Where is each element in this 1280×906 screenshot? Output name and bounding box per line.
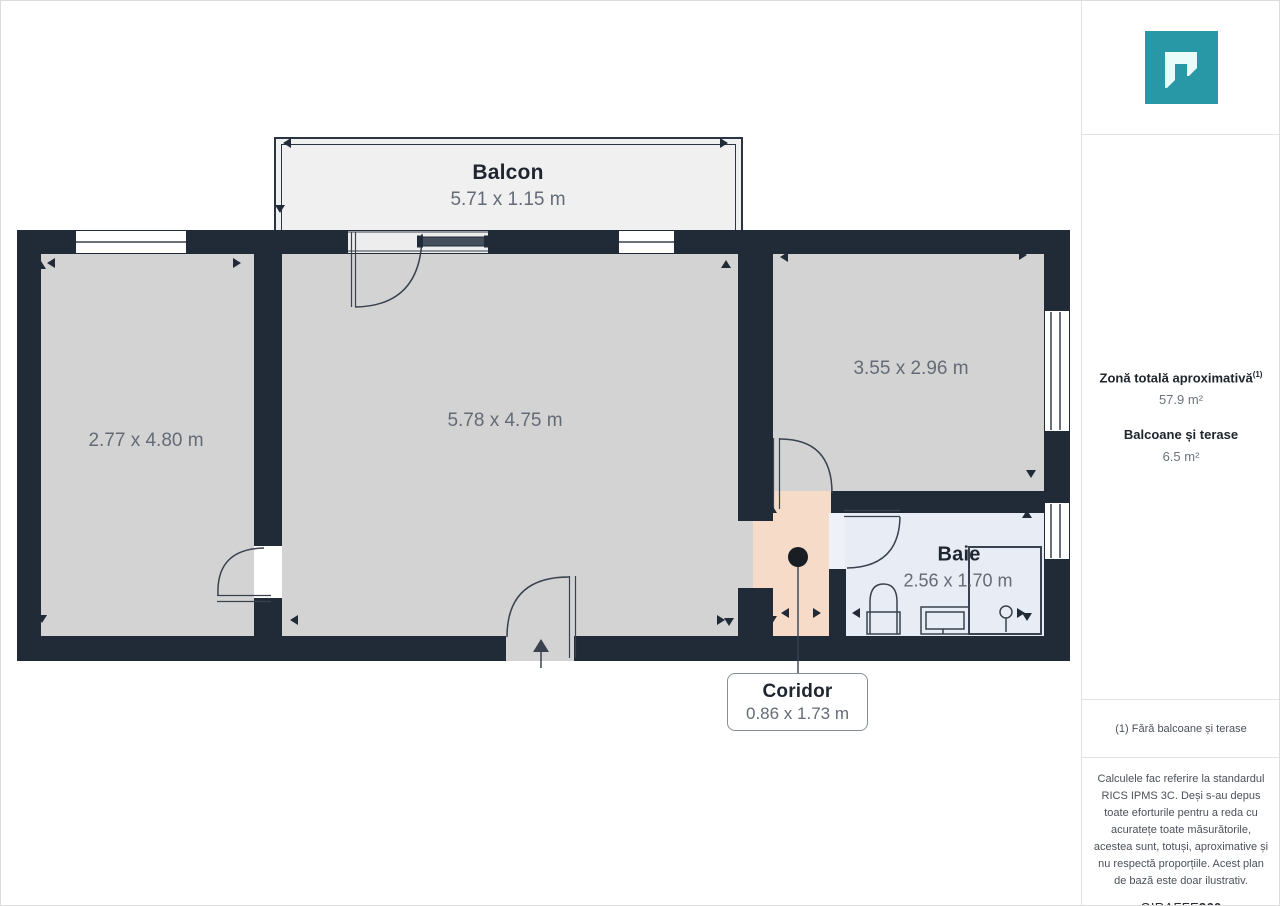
wall-right (1044, 230, 1070, 661)
total-area-footnote-ref: (1) (1253, 370, 1263, 379)
balcony-name-label: Balcon (472, 161, 543, 185)
floorplan-page: Balcon 5.71 x 1.15 m 2.77 x 4.80 m 5.78 … (0, 0, 1280, 906)
corridor-passage-floor2 (753, 521, 773, 588)
wall-interior-a2 (254, 598, 282, 636)
brand-wordmark: GIRAFFE360 (1093, 900, 1269, 906)
room-right-dims-label: 3.55 x 2.96 m (853, 358, 968, 380)
measure-arrow-icon (767, 500, 777, 513)
bathroom-name-label: Baie (937, 544, 980, 567)
bathroom-doorway-floor (829, 513, 845, 569)
wall-interior-b1 (738, 254, 773, 521)
giraffe360-logo-icon (1145, 31, 1218, 104)
room-main-floor (282, 254, 738, 636)
wall-bathroom-top (831, 491, 1044, 513)
measure-arrow-icon (1019, 250, 1032, 260)
balcony-area-value: 6.5 m² (1163, 449, 1200, 464)
wall-interior-a1 (254, 254, 282, 546)
measure-arrow-icon (775, 252, 788, 262)
measure-arrow-icon (285, 615, 298, 625)
logo-section (1082, 1, 1280, 135)
measure-arrow-icon (776, 608, 789, 618)
balcony-dims-label: 5.71 x 1.15 m (450, 189, 565, 211)
total-area-value: 57.9 m² (1159, 392, 1203, 407)
area-stats-section: Zonă totală aproximativă(1) 57.9 m² Balc… (1082, 135, 1280, 699)
entry-door-opening (506, 636, 574, 661)
balcony-inner-rail (281, 144, 736, 231)
measure-arrow-icon (1022, 505, 1032, 518)
corridor-callout: Coridor 0.86 x 1.73 m (727, 673, 868, 731)
measure-arrow-icon (767, 616, 777, 629)
window-right-room (1045, 311, 1069, 431)
balcony-area-label: Balcoane și terase (1124, 427, 1238, 442)
measure-arrow-icon (278, 138, 291, 148)
measure-arrow-icon (233, 258, 246, 268)
measure-arrow-icon (813, 608, 826, 618)
floorplan: Balcon 5.71 x 1.15 m 2.77 x 4.80 m 5.78 … (1, 1, 1081, 906)
balcony-door-opening (348, 231, 421, 253)
window-main-room (619, 231, 674, 253)
room-main-dims-label: 5.78 x 4.75 m (447, 410, 562, 432)
wall-left (17, 230, 41, 661)
footnote-text: (1) Fără balcoane și terase (1115, 723, 1246, 735)
info-sidebar: Zonă totală aproximativă(1) 57.9 m² Balc… (1081, 1, 1280, 905)
measure-arrow-icon (724, 618, 734, 631)
measure-arrow-icon (275, 205, 285, 218)
measure-arrow-icon (42, 258, 55, 268)
total-area-label: Zonă totală aproximativă(1) (1100, 370, 1263, 385)
disclaimer-text: Calculele fac referire la standardul RIC… (1093, 771, 1269, 890)
measure-arrow-icon (721, 255, 731, 268)
footnote-section: (1) Fără balcoane și terase (1082, 699, 1280, 757)
balcony-slider-opening (421, 231, 488, 253)
room-left-dims-label: 2.77 x 4.80 m (88, 430, 203, 452)
measure-arrow-icon (1017, 608, 1030, 618)
measure-arrow-icon (847, 608, 860, 618)
measure-arrow-icon (720, 138, 733, 148)
corridor-passage-floor (738, 521, 753, 588)
corridor-dims-label: 0.86 x 1.73 m (746, 703, 849, 724)
disclaimer-section: Calculele fac referire la standardul RIC… (1082, 757, 1280, 906)
bathroom-dims-label: 2.56 x 1.70 m (903, 571, 1012, 592)
corridor-name-label: Coridor (762, 680, 832, 704)
wall-corridor-bath (829, 569, 846, 636)
measure-arrow-icon (1026, 470, 1036, 483)
window-bathroom (1045, 503, 1069, 559)
window-left-room (76, 231, 186, 253)
measure-arrow-icon (37, 615, 47, 628)
